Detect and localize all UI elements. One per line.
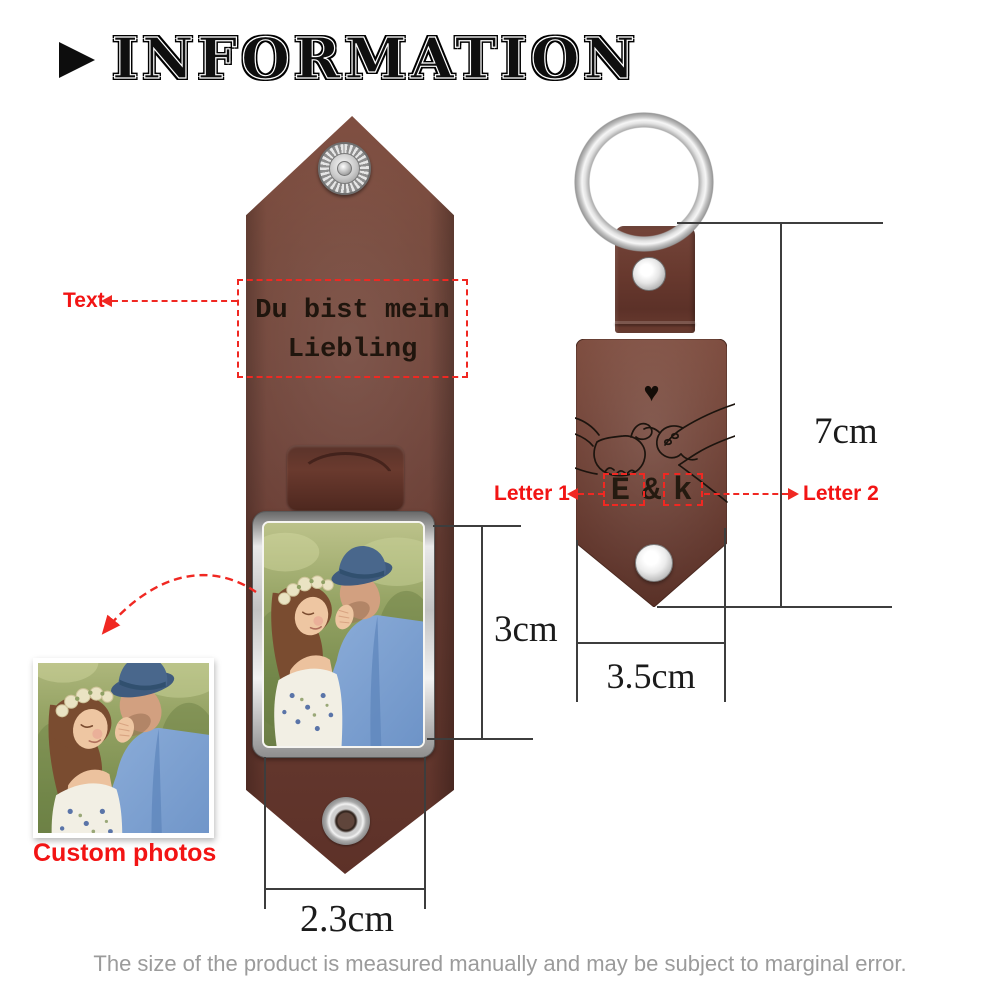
key-ring-icon xyxy=(574,112,714,252)
dim-2-3cm-right-line xyxy=(424,757,426,909)
letter1-annotation-label: Letter 1 xyxy=(494,482,566,506)
letter2-arrow-head-icon xyxy=(788,488,799,500)
snap-button-top-icon xyxy=(318,142,371,195)
custom-photo-arrow xyxy=(60,560,270,655)
disclaimer-note: The size of the product is measured manu… xyxy=(0,951,1000,977)
dim-3cm-label: 3cm xyxy=(494,608,558,651)
dim-3-5cm-tick xyxy=(576,642,726,644)
dim-7cm-line xyxy=(780,223,782,607)
letter1-highlight-box xyxy=(603,473,645,506)
snap-dome-icon xyxy=(635,544,673,582)
couple-photo-in-frame xyxy=(262,521,425,748)
letter1-arrow-line xyxy=(578,493,604,495)
rivet-icon xyxy=(632,257,666,291)
dim-3-5cm-left-line xyxy=(576,540,578,702)
text-annotation-label: Text xyxy=(63,289,105,313)
engraved-letters: E & k xyxy=(576,474,727,508)
snap-socket-icon xyxy=(322,797,370,845)
dim-2-3cm-label: 2.3cm xyxy=(262,897,432,941)
letter2-annotation-label: Letter 2 xyxy=(803,482,879,506)
leather-loop-tab xyxy=(287,445,404,510)
dim-3-5cm-right-line xyxy=(724,528,726,702)
dim-3-5cm-label: 3.5cm xyxy=(591,655,711,697)
text-arrow-head-icon xyxy=(101,295,112,307)
product-information-graphic: INFORMATION Du bist mein Liebling Text 3… xyxy=(0,0,1000,1000)
dim-3cm-bottom-tick xyxy=(427,738,533,740)
dim-7cm-label: 7cm xyxy=(814,410,878,453)
dim-3cm-top-tick xyxy=(433,525,521,527)
text-arrow-line xyxy=(112,300,237,302)
page-title: INFORMATION xyxy=(112,26,639,92)
letter2-arrow-line xyxy=(704,493,788,495)
play-triangle-icon xyxy=(59,42,95,78)
text-area-highlight-box xyxy=(237,279,468,378)
photo-frame xyxy=(252,511,435,758)
custom-photo xyxy=(33,658,214,838)
dim-2-3cm-tick xyxy=(264,888,426,890)
custom-photos-label: Custom photos xyxy=(33,839,214,868)
dim-7cm-bottom-tick xyxy=(657,606,892,608)
dim-3cm-line xyxy=(481,526,483,740)
letter2-highlight-box xyxy=(663,473,703,506)
letter1-arrow-head-icon xyxy=(567,488,578,500)
dim-2-3cm-left-line xyxy=(264,757,266,909)
